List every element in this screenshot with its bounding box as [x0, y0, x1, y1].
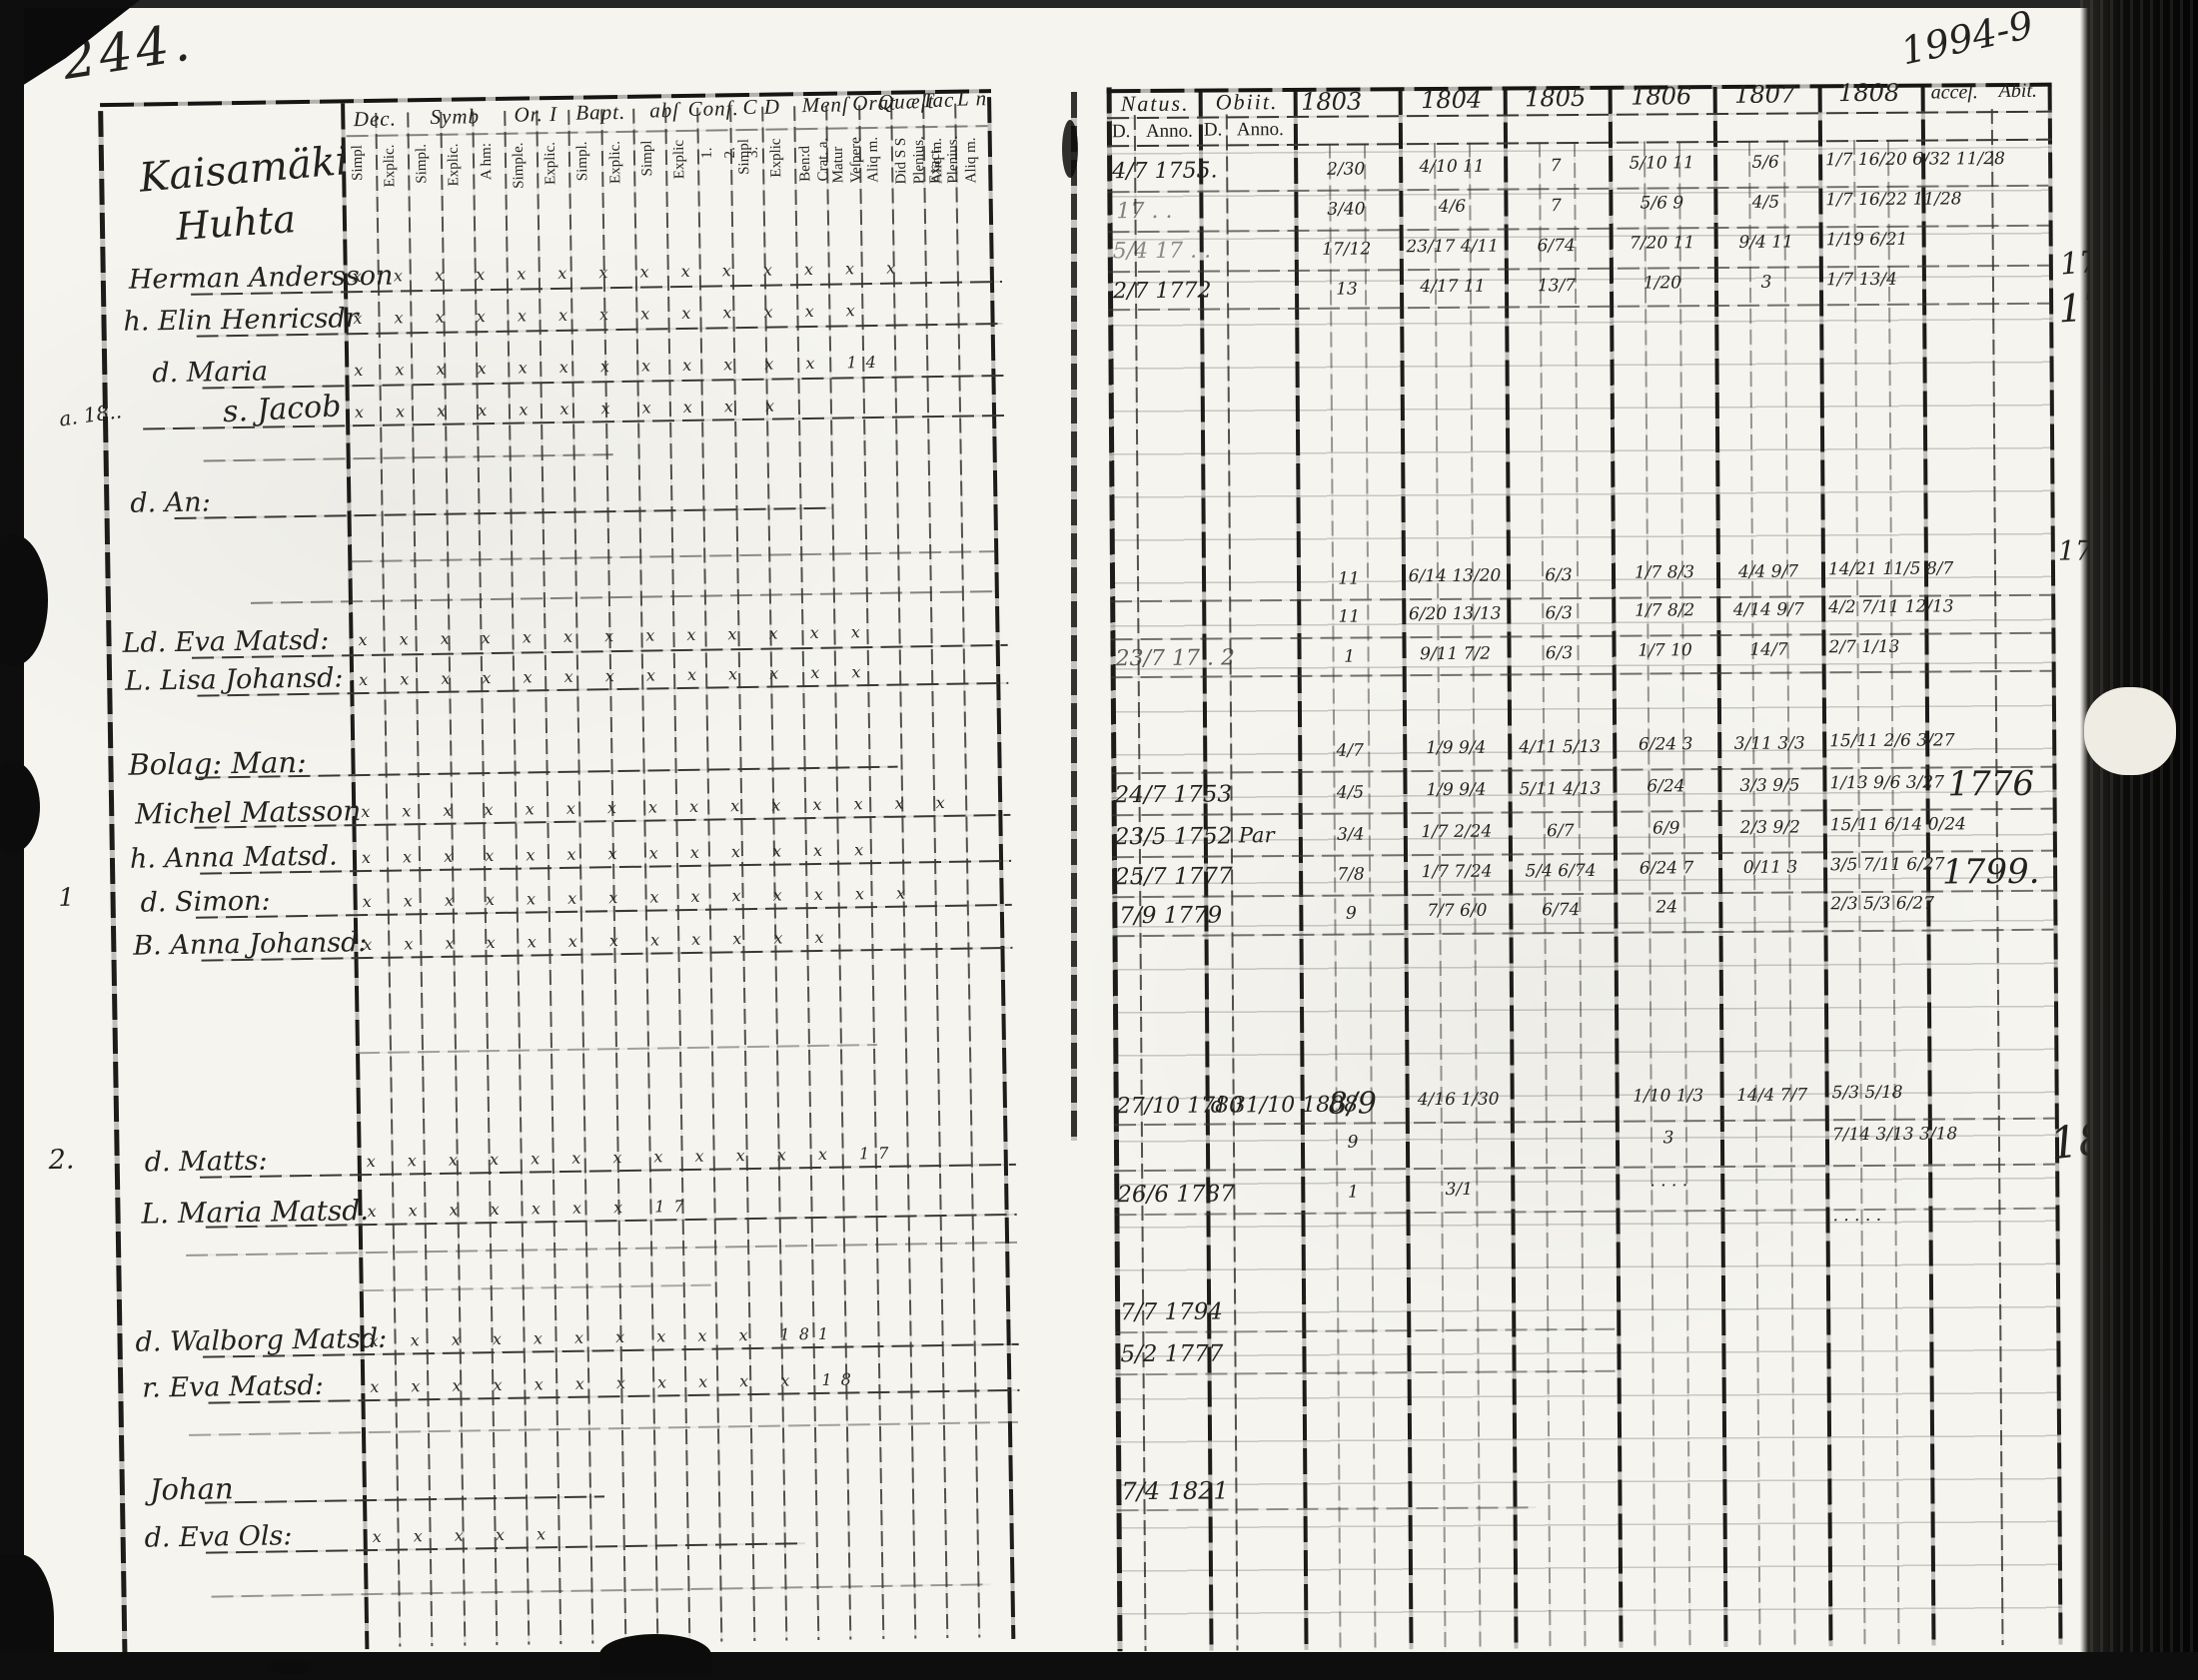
cell-1808: 2/7 1/13: [1828, 637, 1899, 657]
cell-1803: 7/8: [1337, 864, 1364, 884]
cell-1807: 4/5: [1752, 193, 1779, 213]
cell-1806: 1/7 8/3: [1635, 562, 1694, 582]
year-header: 1806: [1631, 82, 1691, 110]
cell-1808: 7/14 3/13 3/18: [1832, 1124, 1957, 1145]
cell-1806: 6/24: [1647, 776, 1684, 796]
natus-value: 26/6 1787: [1117, 1181, 1235, 1208]
cell-1807: 5/6: [1751, 153, 1778, 173]
acces-header: acceſ.: [1931, 81, 1978, 104]
cell-1804: 6/14 13/20: [1409, 566, 1502, 587]
cell-1807: 9/4 11: [1738, 232, 1793, 252]
cell-1803: 3/4: [1337, 824, 1364, 844]
cell-1806: 7/20 11: [1630, 233, 1694, 253]
cell-1805: 7: [1551, 196, 1562, 216]
natus-value: 4/7 1755.: [1112, 159, 1218, 185]
natus-value: 23/7 17 . 2: [1116, 645, 1236, 671]
cell-1807: 14/4 7/7: [1736, 1085, 1807, 1105]
cell-1808: 1/7 16/22 11/28: [1825, 189, 1961, 210]
cell-1808: 1/7 13/4: [1826, 270, 1897, 290]
scan-edge-right: [2080, 0, 2198, 1680]
cell-1805: 13/7: [1538, 276, 1576, 296]
cell-1805: 6/74: [1538, 236, 1576, 256]
cell-1806: 24: [1655, 897, 1677, 917]
cell-1807: 4/14 9/7: [1733, 599, 1804, 619]
cell-1805: 5/4 6/74: [1526, 861, 1597, 881]
cell-1804: 4/6: [1439, 197, 1466, 217]
thumb-notch-highlight: [2084, 687, 2176, 775]
cell-1806: 1/7 10: [1638, 640, 1692, 660]
acces-note: 1799.: [1942, 852, 2040, 893]
cell-1807: 3: [1760, 273, 1771, 293]
year-header: 1807: [1734, 80, 1795, 108]
cell-1805: 6/3: [1545, 565, 1572, 585]
cell-1803: 3/40: [1327, 199, 1365, 219]
cell-1807: 4/4 9/7: [1738, 561, 1798, 581]
natus-value: 2/7 1772: [1113, 279, 1212, 305]
cell-1805: 6/74: [1542, 900, 1580, 920]
natus-value: 23/5 1752: [1115, 823, 1233, 850]
scan-edge-top: [0, 0, 2198, 8]
cell-1808: 3/5 7/11 6/27: [1830, 854, 1945, 875]
obiit-header: Obiit.: [1216, 89, 1279, 115]
cell-1807: 3/11 3/3: [1734, 733, 1805, 753]
cell-1806: 1/20: [1644, 273, 1681, 293]
cell-1805: 6/3: [1546, 643, 1573, 663]
cell-1806: 6/24 3: [1639, 734, 1693, 754]
year-header: 1805: [1525, 84, 1586, 112]
cell-1808: 15/11 2/6 3/27: [1829, 730, 1954, 751]
year-header: 1808: [1838, 79, 1899, 107]
cell-1808: 14/21 11/5 8/7: [1828, 558, 1953, 579]
natus-header: Natus.: [1121, 91, 1190, 117]
bottom-smudge: [268, 1660, 312, 1674]
cell-1807: 2/3 9/2: [1740, 817, 1800, 837]
cell-1806: 1/10 1/3: [1633, 1086, 1703, 1106]
cell-1803: 1: [1344, 647, 1355, 667]
year-header: 1804: [1421, 86, 1482, 114]
cell-1804: 9/11 7/2: [1420, 644, 1491, 664]
cell-1803: 13: [1336, 280, 1358, 300]
cell-1808: 1/19 6/21: [1826, 230, 1908, 251]
year-header: 1803: [1301, 87, 1362, 115]
cell-1804: 1/7 2/24: [1421, 822, 1492, 842]
cell-1804: 1/9 9/4: [1426, 738, 1486, 758]
cell-1806: · · · ·: [1649, 1176, 1687, 1196]
natus-value: 5/4 17 . .: [1113, 239, 1212, 265]
cell-1803: 9: [1346, 904, 1357, 924]
cell-1807: 14/7: [1749, 640, 1787, 660]
cell-1808: 4/2 7/11 12/13: [1828, 596, 1953, 617]
cell-1806: 5/6 9: [1641, 193, 1684, 213]
cell-1808: 15/11 6/14 0/24: [1830, 814, 1966, 835]
cell-1808: · · · · ·: [1832, 1211, 1881, 1231]
cell-1805: 6/7: [1547, 821, 1574, 841]
cell-1804: 7/7 6/0: [1427, 901, 1487, 921]
cell-1804: 4/10 11: [1419, 157, 1484, 177]
obiit-value: Par: [1239, 823, 1275, 847]
cell-1803: 2/30: [1327, 159, 1365, 179]
cell-1804: 4/16 1/30: [1418, 1090, 1500, 1111]
natus-value: 7/4 1821: [1121, 1476, 1229, 1505]
cell-1807: 3/3 9/5: [1739, 775, 1799, 795]
day-subheader: D.: [1112, 121, 1131, 143]
anno-subheader: Anno.: [1237, 119, 1284, 141]
cell-1808: 2/3 5/3 6/27: [1830, 894, 1934, 915]
abit-header: Abit.: [1999, 80, 2038, 103]
cell-1806: 3: [1662, 1128, 1673, 1148]
gutter-fold-line: [1071, 92, 1077, 1141]
cell-1804: 1/9 9/4: [1426, 780, 1486, 800]
cell-1803: 9: [1347, 1133, 1358, 1153]
cell-1804: 6/20 13/13: [1409, 604, 1502, 625]
cell-1808: 1/7 16/20 6/32 11/28: [1825, 149, 2005, 170]
cell-1803: 1: [1348, 1183, 1359, 1203]
natus-value: 25/7 1777: [1115, 863, 1233, 890]
cell-1804: 23/17 4/11: [1406, 237, 1499, 258]
right-page: Natus. Obiit. 1803 1804 1805 1806 1807 1…: [0, 0, 2198, 1680]
cell-1806: 5/10 11: [1629, 153, 1693, 173]
cell-1808: 1/13 9/6 3/27: [1829, 772, 1944, 793]
scan-edge-bottom: [0, 1652, 2198, 1680]
natus-value: 17 . .: [1116, 199, 1172, 224]
page-edge-texture: [2080, 0, 2198, 1680]
cell-1803: 11: [1338, 569, 1360, 589]
cell-1804: 3/1: [1446, 1180, 1473, 1200]
acces-note: 1776: [1947, 764, 2034, 805]
cell-1803: 17/12: [1322, 239, 1371, 259]
natus-value: 7/9 1779: [1119, 902, 1222, 929]
natus-value: 24/7 1753: [1114, 781, 1232, 808]
cell-1806: 6/24 7: [1640, 858, 1694, 878]
bottom-ink-blob: [599, 1634, 711, 1676]
cell-1806: 6/9: [1652, 818, 1679, 838]
cell-1804: 1/7 7/24: [1422, 862, 1493, 882]
day-subheader: D.: [1204, 119, 1223, 141]
cell-1803: 8/9: [1328, 1086, 1377, 1121]
cell-1805: 7: [1551, 156, 1562, 176]
cell-1807: 0/11 3: [1743, 857, 1798, 877]
cell-1808: 5/3 5/18: [1832, 1083, 1903, 1103]
cell-1803: 4/7: [1336, 740, 1363, 760]
gutter-ink-blob: [1062, 120, 1078, 178]
register-scan: Dec. Symb Or. I Bapt. abſ Conf. C D Menſ…: [0, 0, 2198, 1680]
anno-subheader: Anno.: [1146, 121, 1193, 143]
cell-1803: 11: [1338, 607, 1360, 627]
natus-value: 7/7 1794: [1120, 1298, 1223, 1325]
natus-value: 5/2 1777: [1120, 1340, 1223, 1367]
cell-1804: 4/17 11: [1420, 277, 1485, 297]
cell-1803: 4/5: [1337, 782, 1364, 802]
cell-1806: 1/7 8/2: [1635, 600, 1694, 620]
cell-1805: 5/11 4/13: [1520, 779, 1602, 800]
cell-1805: 6/3: [1546, 603, 1573, 623]
cell-1805: 4/11 5/13: [1519, 737, 1601, 758]
